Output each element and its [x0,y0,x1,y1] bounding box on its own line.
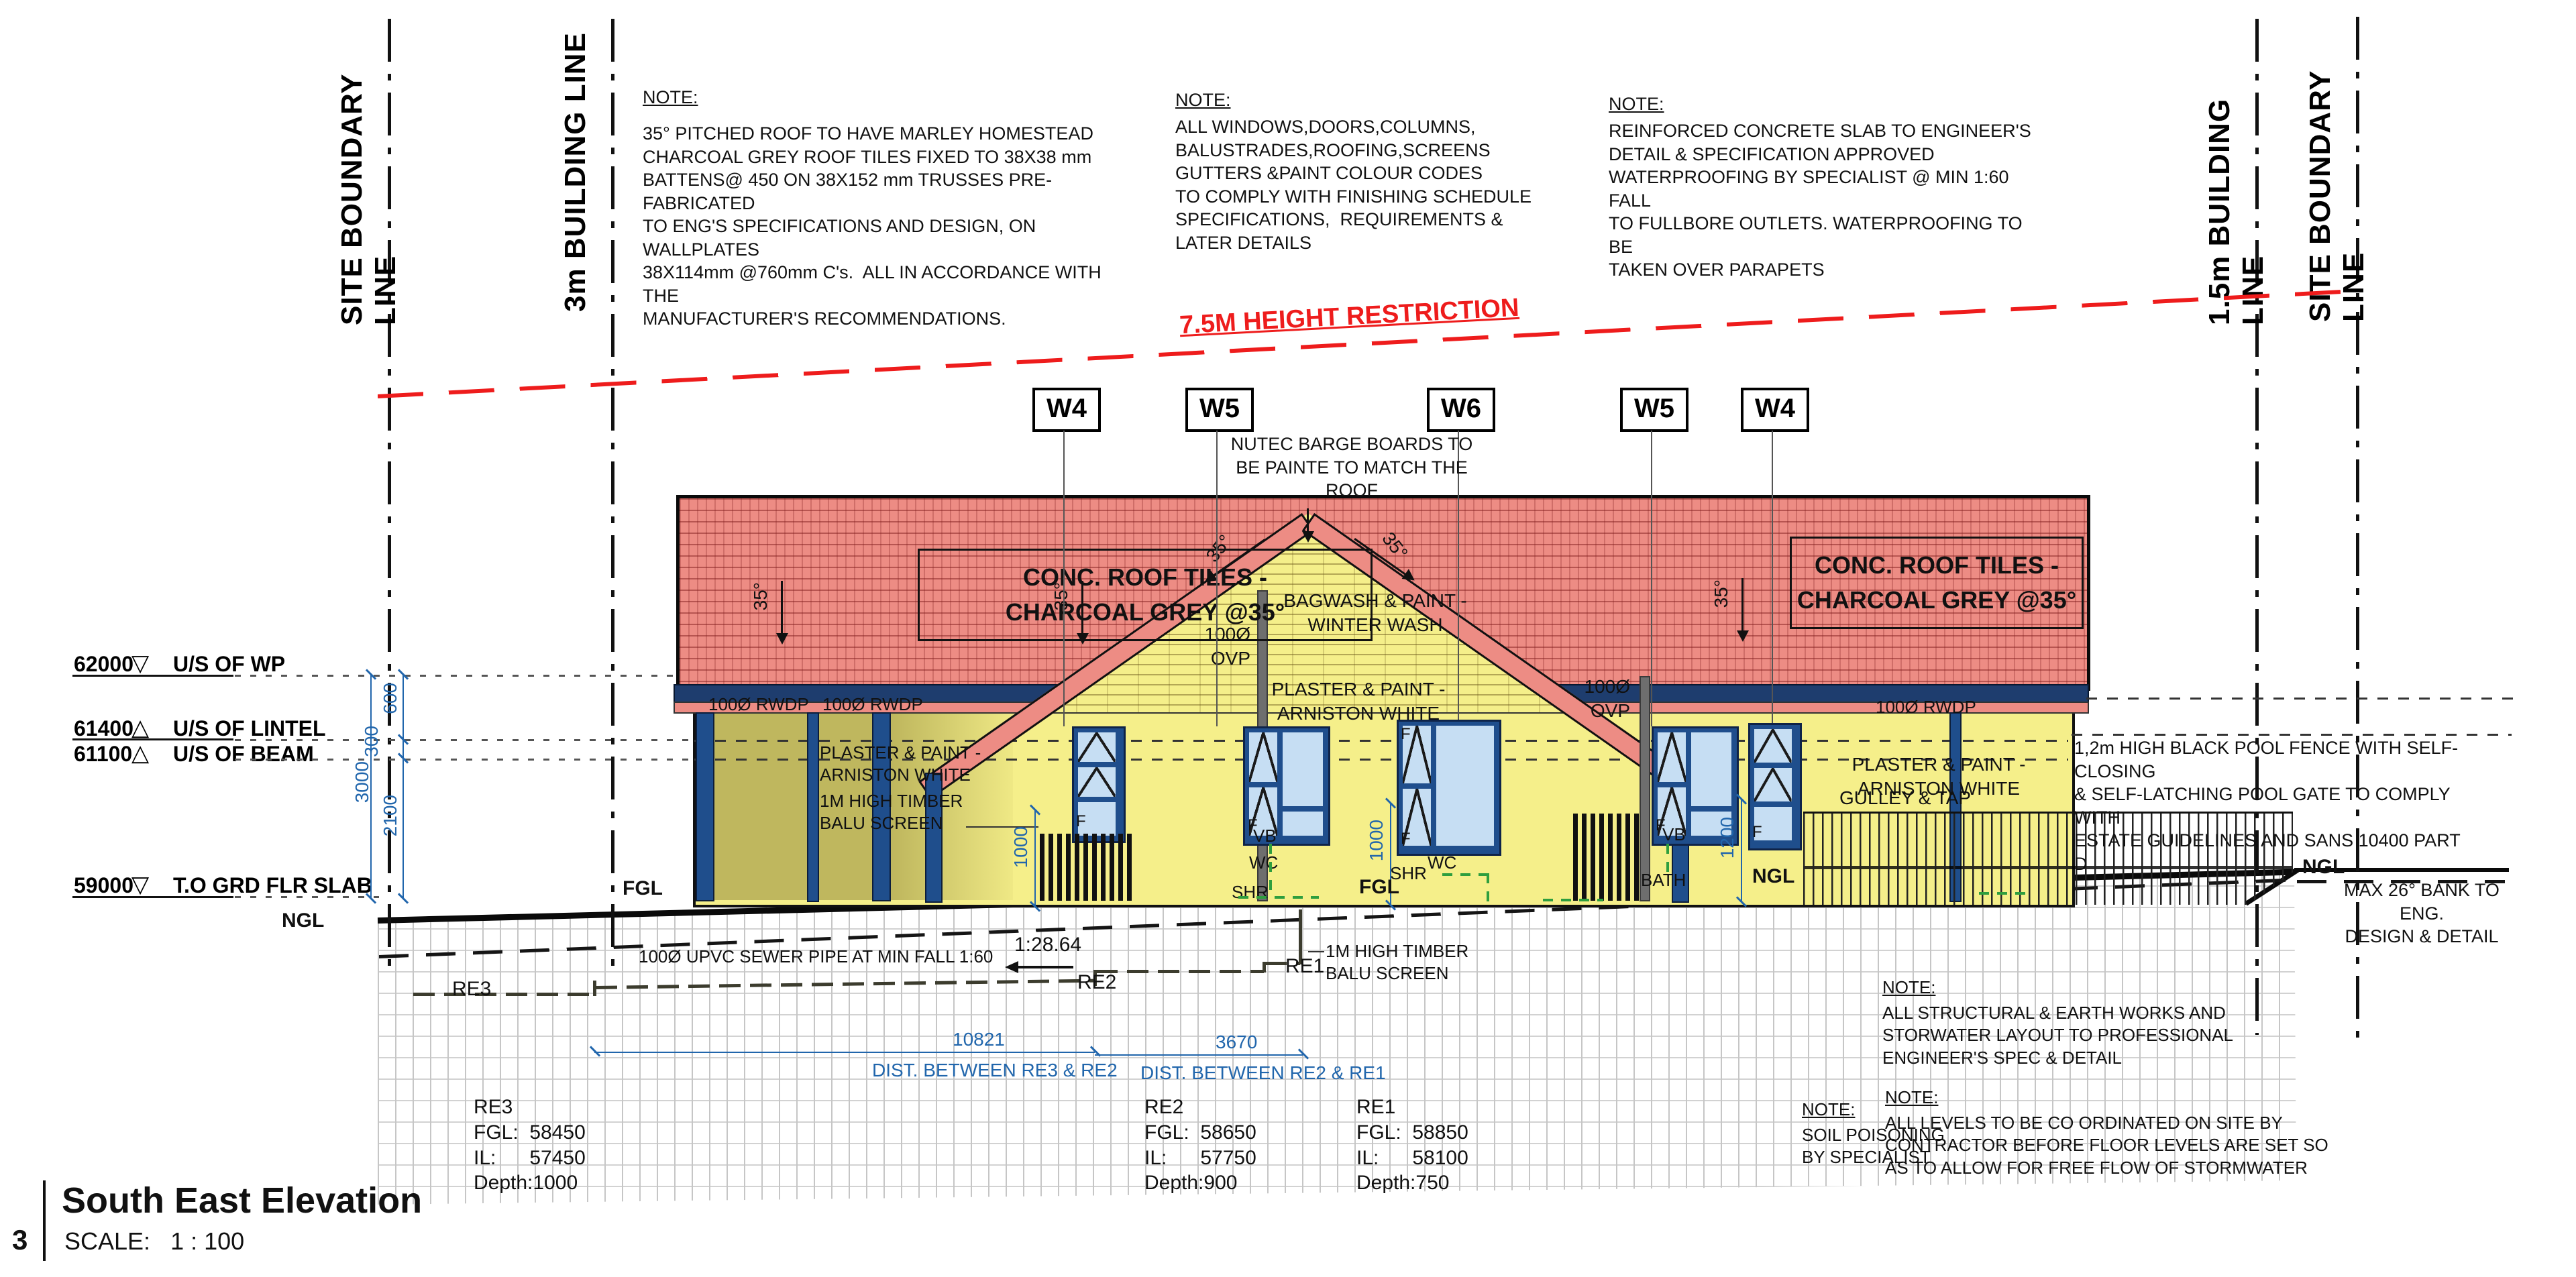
ovp-pipe-right [1640,676,1650,901]
window-pane [1078,767,1116,797]
note-windows-body: ALL WINDOWS,DOORS,COLUMNS, BALUSTRADES,R… [1175,115,1551,254]
tag-leader [1063,431,1065,726]
re2-label: RE2 [1077,970,1116,995]
dim-screen-mid: 1000 [1366,820,1387,861]
note-windows-title: NOTE: [1175,89,1231,112]
pitch-arrowhead-5 [1737,630,1749,642]
balu-note-leader [1308,951,1324,952]
gulley-label: GULLEY & TAP [1839,786,1971,810]
bank-note: MAX 26° BANK TO ENG. DESIGN & DETAIL [2328,879,2516,948]
ngl-label-right: NGL [2302,854,2345,880]
balu-note-lower: 1M HIGH TIMBER BALU SCREEN [1326,940,1468,985]
fall-arrow-head [1005,961,1018,973]
plaster-center-label: PLASTER & PAINT - ARNISTON WHITE [1261,677,1456,726]
level-name-beam: U/S OF BEAM [173,742,314,767]
level-symbol-beam: △ [131,742,149,765]
note-levels-title: NOTE: [1885,1087,1938,1109]
sewer-pipe-label: 100Ø UPVC SEWER PIPE AT MIN FALL 1:60 [639,946,993,968]
ovp-label-left: 100Ø OVP [1181,622,1250,671]
green-pipe [1979,892,2026,895]
balu-screen-left [1040,834,1134,901]
green-pipe [1543,899,1603,901]
level-value-beam: 61100 [74,742,132,767]
rwdp-pipe-left [807,712,819,902]
window-pane [1658,732,1686,782]
level-line [72,896,233,898]
fall-label: 1:28.64 [1014,932,1081,958]
pitch-label-5: 35° [1711,579,1732,608]
barge-note: NUTEC BARGE BOARDS TO BE PAINTE TO MATCH… [1207,433,1496,502]
pitch-arrow-5 [1741,578,1743,632]
re3-block: RE3 FGL: 58450 IL: 57450 Depth:1000 [474,1095,586,1196]
balu-screen-center [1573,814,1640,901]
dim-re3-re2-line [594,1052,1095,1053]
rwdp-label-2: 100Ø RWDP [822,693,923,716]
ngl-label-left: NGL [282,908,324,934]
note-roof-body: 35° PITCHED ROOF TO HAVE MARLEY HOMESTEA… [643,122,1106,331]
vb-label-right: VB [1662,824,1686,846]
dim-fence: 1200 [1717,817,1738,858]
fall-arrow-shaft [1017,966,1073,968]
dim-300: 300 [361,726,382,757]
site-boundary-label-left: SITE BOUNDARY LINE [335,23,402,325]
vb-label-left: VB [1253,825,1277,847]
dim-3000: 3000 [352,761,373,803]
green-pipe [1666,844,1669,872]
drawing-scale: SCALE: 1 : 100 [64,1226,244,1257]
level-value-wp: 62000 [74,652,133,677]
green-pipe [1238,896,1319,899]
f-label: F [1752,822,1762,843]
fgl-label-left: FGL [623,876,663,901]
window-pane [1691,732,1731,806]
note-soil-title: NOTE: [1802,1099,1855,1121]
note-slab-title: NOTE: [1609,93,1664,116]
dim-fence-line [1741,799,1742,902]
balu-left-label: 1M HIGH TIMBER BALU SCREEN [820,790,963,835]
dim-re3-re2-value: 10821 [953,1028,1005,1052]
wc-label-center: WC [1428,852,1456,874]
rwdp-label-1: 100Ø RWDP [708,693,809,716]
ngl-label-mid: NGL [1752,864,1794,889]
pitch-arrow-2 [1081,581,1083,634]
note-levels-body: ALL LEVELS TO BE CO ORDINATED ON SITE BY… [1885,1112,2328,1179]
drawing-number: 3 [12,1222,28,1258]
bagwash-label: BAGWASH & PAINT - WINTER WASH [1278,589,1472,637]
dim-2100: 2100 [380,795,401,836]
re3-label: RE3 [452,977,491,1002]
level-dotted-wp [235,675,678,677]
fgl-label-center: FGL [1359,875,1399,900]
window-pane [1283,732,1323,806]
window-tag-w4-right: W4 [1741,388,1809,432]
level-symbol-wp: ▽ [131,652,149,675]
wc-label-left: WC [1249,852,1278,874]
pool-fence-note: 1,2m HIGH BLACK POOL FENCE WITH SELF-CLO… [2074,736,2477,875]
level-dotted-slab [235,896,379,898]
building-line-15m-label: 1.5m BUILDING LINE [2203,23,2270,325]
f-label: F [1401,724,1411,745]
building-line-3m-label: 3m BUILDING LINE [559,23,592,312]
level-line [72,738,233,740]
right-level-dash-2 [2072,734,2512,736]
note-structural-title: NOTE: [1882,977,1935,999]
level-value-lintel: 61400 [74,716,133,741]
level-value-slab: 59000 [74,873,133,898]
green-pipe [1269,844,1272,897]
level-dotted-lintel [235,739,694,741]
rwdp-label-3: 100Ø RWDP [1876,696,1976,718]
dim-screen-left-line [1034,810,1036,907]
window-pane [1283,812,1323,836]
roof-label-right: CONC. ROOF TILES - CHARCOAL GREY @35° [1790,537,2084,629]
sewer-pipe [1096,970,1264,973]
window-tag-w6: W6 [1427,388,1495,432]
f-label: F [1401,829,1411,850]
re1-block: RE1 FGL: 58850 IL: 58100 Depth:750 [1356,1095,1468,1196]
pitch-label-1: 35° [750,582,771,610]
window-tag-w5-left: W5 [1185,388,1254,432]
re1-label: RE1 [1285,954,1324,979]
barge-arrow [1307,508,1309,533]
pitch-arrowhead-2 [1077,633,1089,645]
level-dotted-beam [235,759,694,761]
window-pane [1078,732,1116,762]
level-line [72,675,233,677]
level-name-wp: U/S OF WP [173,652,285,677]
pitch-label-2: 35° [1051,582,1072,610]
window-w6-center [1397,720,1501,856]
pitch-arrowhead-1 [776,633,788,645]
building-line-3m [611,19,614,978]
tag-leader [1651,431,1652,726]
height-restriction-label: 7.5M HEIGHT RESTRICTION [1179,292,1520,342]
dim-600: 600 [380,683,401,714]
ovp-label-right: 100Ø OVP [1555,675,1630,723]
level-name-slab: T.O GRD FLR SLAB [173,873,372,898]
window-pane [1436,726,1494,846]
note-structural-body: ALL STRUCTURAL & EARTH WORKS AND STORWAT… [1882,1002,2233,1069]
re2-block: RE2 FGL: 58650 IL: 57750 Depth:900 [1144,1095,1256,1196]
window-pane [1754,729,1792,763]
dim-re2-re1-line [1095,1054,1303,1056]
green-pipe [1487,873,1489,903]
plaster-left-label: PLASTER & PAINT - ARNISTON WHITE [820,742,981,787]
dim-chain-sub [402,675,404,899]
dim-re3-re2-label: DIST. BETWEEN RE3 & RE2 [872,1058,1118,1082]
note-slab-body: REINFORCED CONCRETE SLAB TO ENGINEER'S D… [1609,119,2038,282]
green-pipe [1442,873,1489,876]
right-level-dash-1 [2086,698,2513,700]
pitch-arrow-1 [781,581,783,634]
level-name-lintel: U/S OF LINTEL [173,716,326,741]
window-tag-w4-left: W4 [1032,388,1101,432]
title-divider [43,1180,46,1261]
veranda-post-left [696,712,714,901]
level-symbol-slab: ▽ [131,873,149,896]
barge-arrowhead [1302,531,1314,543]
bath-label: BATH [1641,869,1686,891]
dim-re2-re1-value: 3670 [1216,1030,1257,1054]
drawing-title: South East Elevation [62,1178,422,1224]
shr-label-left: SHR [1232,881,1269,903]
window-tag-w5-right: W5 [1620,388,1688,432]
dim-re2-re1-label: DIST. BETWEEN RE2 & RE1 [1140,1061,1386,1085]
window-pane [1754,768,1792,801]
dim-screen-left: 1000 [1010,826,1032,868]
level-symbol-lintel: △ [131,716,149,739]
f-label: F [1076,812,1086,832]
note-roof-title: NOTE: [643,86,698,109]
tag-leader [1772,431,1773,723]
window-pane [1249,732,1277,782]
sewer-pipe [413,993,594,996]
site-boundary-label-right: SITE BOUNDARY LINE [2304,20,2371,322]
